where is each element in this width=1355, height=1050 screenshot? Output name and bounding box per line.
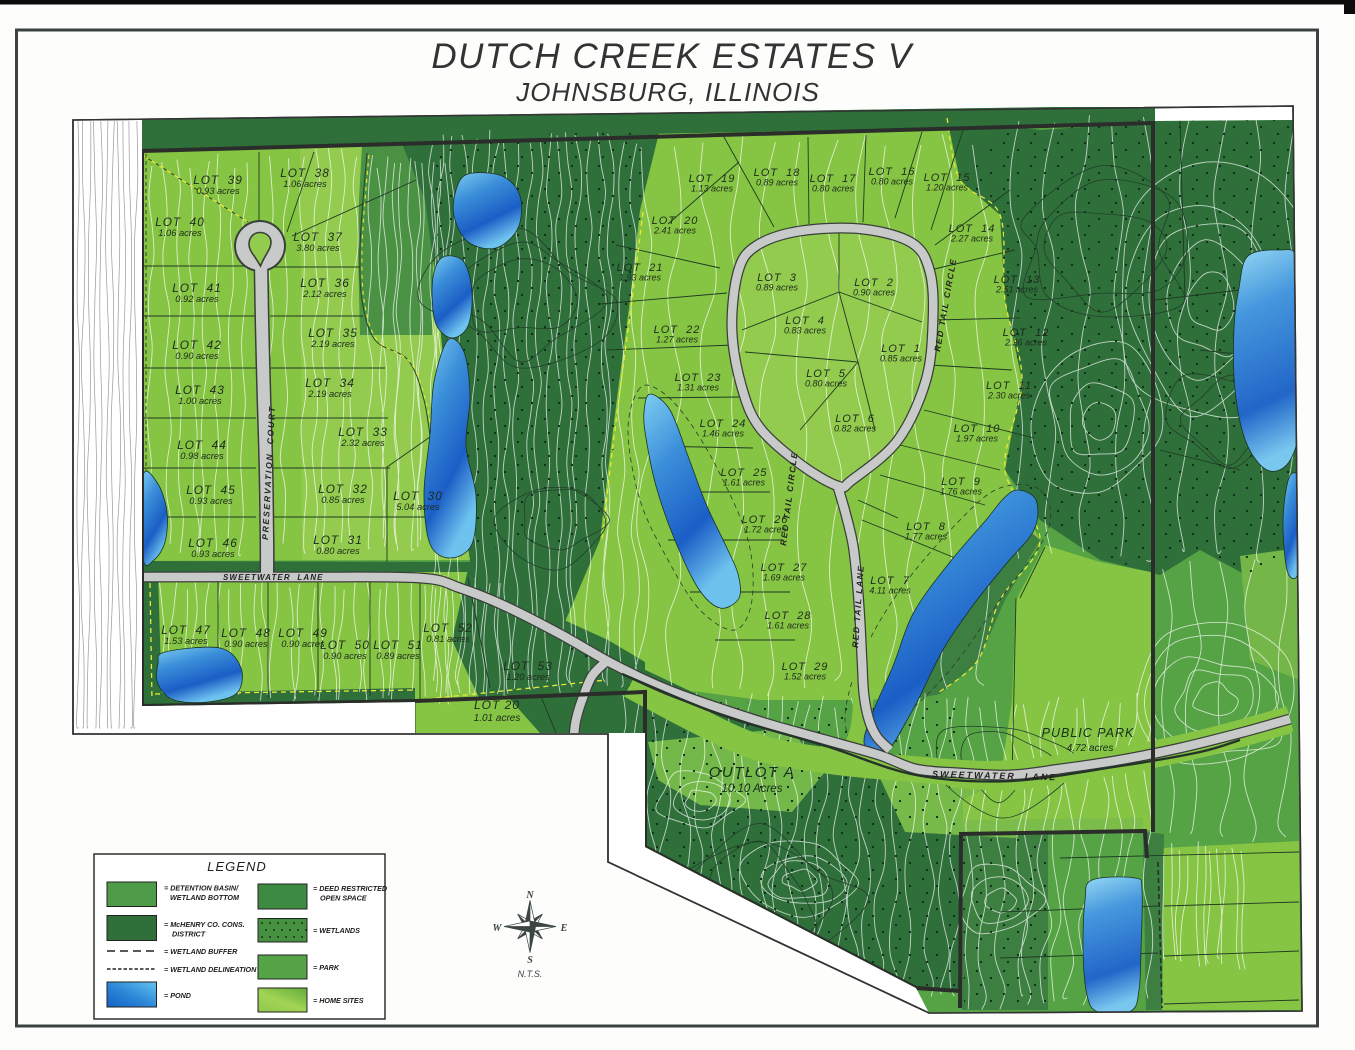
svg-text:2.51 acres: 2.51 acres bbox=[995, 285, 1039, 295]
svg-text:1.53 acres: 1.53 acres bbox=[164, 636, 208, 646]
svg-text:LOT 37: LOT 37 bbox=[293, 230, 343, 244]
svg-text:2.36 acres: 2.36 acres bbox=[1004, 338, 1048, 348]
svg-text:LOT 20: LOT 20 bbox=[474, 698, 520, 712]
svg-text:LOT 53: LOT 53 bbox=[503, 659, 553, 673]
svg-text:0.90 acres: 0.90 acres bbox=[175, 351, 219, 361]
svg-text:4.72 acres: 4.72 acres bbox=[1067, 743, 1114, 754]
svg-text:1.13 acres: 1.13 acres bbox=[691, 184, 734, 194]
svg-text:= McHENRY CO. CONS.: = McHENRY CO. CONS. bbox=[164, 920, 245, 929]
svg-text:0.81 acres: 0.81 acres bbox=[426, 634, 470, 644]
svg-text:1.72 acres: 1.72 acres bbox=[744, 525, 787, 535]
svg-text:2.30 acres: 2.30 acres bbox=[987, 391, 1031, 401]
svg-text:1.06 acres: 1.06 acres bbox=[283, 179, 327, 189]
svg-text:2.41 acres: 2.41 acres bbox=[653, 226, 697, 236]
svg-text:0.89 acres: 0.89 acres bbox=[756, 178, 799, 188]
svg-text:LOT 33: LOT 33 bbox=[338, 425, 388, 439]
svg-text:S: S bbox=[527, 955, 533, 966]
svg-text:0.85 acres: 0.85 acres bbox=[321, 495, 365, 505]
svg-text:1.27 acres: 1.27 acres bbox=[656, 335, 699, 345]
svg-text:LOT 36: LOT 36 bbox=[300, 276, 350, 290]
svg-text:PUBLIC PARK: PUBLIC PARK bbox=[1042, 726, 1135, 740]
svg-text:1.20 acres: 1.20 acres bbox=[506, 672, 550, 682]
svg-text:OUTLOT A: OUTLOT A bbox=[709, 764, 795, 781]
svg-text:LOT 30: LOT 30 bbox=[393, 489, 443, 503]
svg-text:DISTRICT: DISTRICT bbox=[172, 930, 206, 939]
svg-text:1.97 acres: 1.97 acres bbox=[956, 434, 999, 444]
svg-text:0.93 acres: 0.93 acres bbox=[196, 186, 240, 196]
svg-text:DUTCH CREEK ESTATES V: DUTCH CREEK ESTATES V bbox=[431, 37, 915, 76]
svg-text:0.85 acres: 0.85 acres bbox=[880, 354, 923, 364]
svg-text:0.90 acres: 0.90 acres bbox=[281, 639, 325, 649]
svg-text:LOT 51: LOT 51 bbox=[373, 638, 423, 652]
svg-text:1.00 acres: 1.00 acres bbox=[178, 396, 222, 406]
svg-text:1.31 acres: 1.31 acres bbox=[677, 383, 720, 393]
svg-text:2.19 acres: 2.19 acres bbox=[307, 389, 352, 399]
svg-text:0.90 acres: 0.90 acres bbox=[853, 288, 896, 298]
svg-text:LOT 46: LOT 46 bbox=[188, 536, 238, 550]
svg-text:WETLAND BOTTOM: WETLAND BOTTOM bbox=[170, 893, 240, 902]
svg-text:W: W bbox=[493, 923, 503, 934]
svg-text:0.92 acres: 0.92 acres bbox=[175, 294, 219, 304]
svg-text:3.80 acres: 3.80 acres bbox=[296, 243, 340, 253]
svg-text:= WETLAND DELINEATION: = WETLAND DELINEATION bbox=[164, 965, 257, 974]
svg-text:= POND: = POND bbox=[164, 991, 191, 1000]
svg-text:2.27 acres: 2.27 acres bbox=[950, 234, 994, 244]
svg-text:LOT 32: LOT 32 bbox=[318, 482, 368, 496]
svg-text:LOT 41: LOT 41 bbox=[172, 281, 222, 295]
svg-text:SWEETWATER LANE: SWEETWATER LANE bbox=[223, 573, 324, 582]
svg-text:10.10 Acres: 10.10 Acres bbox=[722, 783, 783, 795]
svg-text:= PARK: = PARK bbox=[313, 963, 340, 972]
svg-text:1.46 acres: 1.46 acres bbox=[702, 429, 745, 439]
svg-text:LOT 44: LOT 44 bbox=[177, 438, 227, 452]
svg-text:LOT 47: LOT 47 bbox=[161, 623, 211, 637]
svg-text:2.32 acres: 2.32 acres bbox=[340, 438, 385, 448]
svg-text:0.90 acres: 0.90 acres bbox=[224, 639, 268, 649]
svg-text:LOT 31: LOT 31 bbox=[313, 533, 363, 547]
svg-text:0.90 acres: 0.90 acres bbox=[323, 651, 367, 661]
svg-text:= DEED RESTRICTED: = DEED RESTRICTED bbox=[313, 884, 387, 893]
svg-text:LOT 38: LOT 38 bbox=[280, 166, 330, 180]
svg-text:LOT 35: LOT 35 bbox=[308, 326, 358, 340]
svg-text:LEGEND: LEGEND bbox=[207, 859, 266, 874]
svg-text:0.89 acres: 0.89 acres bbox=[756, 283, 799, 293]
svg-text:1.20 acres: 1.20 acres bbox=[926, 183, 969, 193]
svg-text:N: N bbox=[525, 890, 534, 901]
svg-text:4.11 acres: 4.11 acres bbox=[869, 586, 911, 596]
svg-text:0.83 acres: 0.83 acres bbox=[784, 326, 827, 336]
svg-text:0.80 acres: 0.80 acres bbox=[812, 184, 855, 194]
svg-text:1.69 acres: 1.69 acres bbox=[763, 573, 806, 583]
svg-text:LOT 34: LOT 34 bbox=[305, 376, 355, 390]
svg-text:= WETLAND BUFFER: = WETLAND BUFFER bbox=[164, 947, 238, 956]
svg-text:JOHNSBURG, ILLINOIS: JOHNSBURG, ILLINOIS bbox=[515, 77, 820, 107]
svg-text:0.93 acres: 0.93 acres bbox=[189, 496, 233, 506]
svg-text:1.01 acres: 1.01 acres bbox=[474, 713, 521, 724]
svg-text:1.52 acres: 1.52 acres bbox=[784, 672, 827, 682]
svg-text:2.19 acres: 2.19 acres bbox=[310, 339, 355, 349]
svg-text:0.80 acres: 0.80 acres bbox=[871, 177, 914, 187]
svg-text:5.04 acres: 5.04 acres bbox=[396, 502, 440, 512]
svg-text:2.12 acres: 2.12 acres bbox=[302, 289, 347, 299]
svg-text:LOT 43: LOT 43 bbox=[175, 383, 225, 397]
svg-text:1.77 acres: 1.77 acres bbox=[905, 532, 948, 542]
svg-text:LOT 48: LOT 48 bbox=[221, 626, 271, 640]
svg-text:LOT 40: LOT 40 bbox=[155, 215, 205, 229]
svg-text:1.93 acres: 1.93 acres bbox=[619, 273, 662, 283]
svg-text:LOT 52: LOT 52 bbox=[423, 621, 473, 635]
svg-text:= DETENTION BASIN/: = DETENTION BASIN/ bbox=[164, 884, 239, 893]
svg-text:1.76 acres: 1.76 acres bbox=[940, 487, 983, 497]
svg-text:1.61 acres: 1.61 acres bbox=[767, 621, 810, 631]
svg-text:E: E bbox=[560, 923, 568, 934]
svg-text:OPEN SPACE: OPEN SPACE bbox=[320, 894, 367, 903]
svg-text:= WETLANDS: = WETLANDS bbox=[313, 926, 360, 935]
svg-text:LOT 42: LOT 42 bbox=[172, 338, 222, 352]
svg-text:0.98 acres: 0.98 acres bbox=[180, 451, 224, 461]
svg-text:0.80 acres: 0.80 acres bbox=[316, 546, 360, 556]
svg-text:LOT 45: LOT 45 bbox=[186, 483, 236, 497]
svg-text:0.82 acres: 0.82 acres bbox=[834, 424, 877, 434]
svg-text:0.93 acres: 0.93 acres bbox=[191, 549, 235, 559]
svg-text:1.61 acres: 1.61 acres bbox=[723, 478, 766, 488]
svg-text:1.06 acres: 1.06 acres bbox=[158, 228, 202, 238]
svg-text:LOT 39: LOT 39 bbox=[193, 173, 243, 187]
svg-text:0.80 acres: 0.80 acres bbox=[805, 379, 848, 389]
svg-text:0.89 acres: 0.89 acres bbox=[376, 651, 420, 661]
svg-text:LOT 50: LOT 50 bbox=[320, 638, 370, 652]
svg-text:N.T.S.: N.T.S. bbox=[518, 969, 543, 979]
svg-text:= HOME SITES: = HOME SITES bbox=[313, 996, 364, 1005]
